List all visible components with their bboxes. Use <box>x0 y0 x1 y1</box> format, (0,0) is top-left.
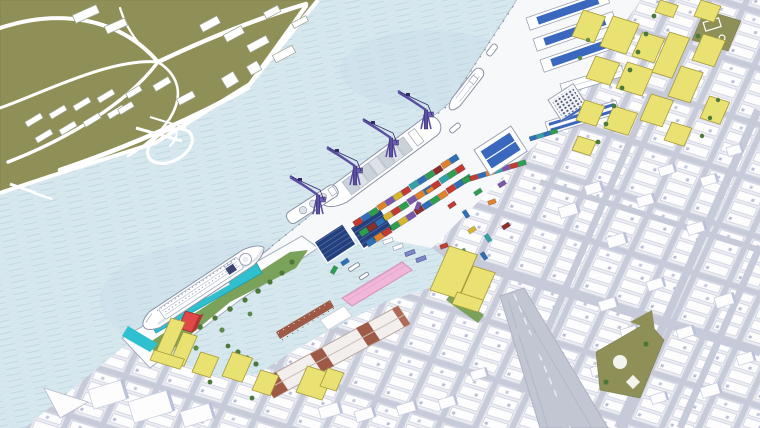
tree <box>700 134 704 138</box>
tree <box>628 68 633 73</box>
tree <box>578 56 582 60</box>
tree <box>289 259 294 264</box>
tree <box>193 345 198 350</box>
tree <box>279 270 284 275</box>
masterplan-canvas <box>0 0 760 428</box>
strip-part <box>253 361 258 366</box>
tree <box>255 288 261 294</box>
tree <box>219 327 224 332</box>
strip-part <box>226 344 231 349</box>
tree <box>248 312 253 317</box>
park-part <box>696 34 701 39</box>
tree <box>708 116 712 120</box>
tree <box>242 297 247 302</box>
tree <box>212 315 217 320</box>
tree <box>227 306 233 312</box>
park-part <box>613 355 627 369</box>
tree <box>716 98 720 102</box>
waterfront-masterplan-illustration <box>0 0 760 428</box>
tree <box>604 122 609 127</box>
tree <box>644 32 649 37</box>
strip-part <box>250 396 255 401</box>
strip-part <box>208 380 213 385</box>
tree <box>620 86 625 91</box>
tree <box>596 140 601 145</box>
park-part <box>643 341 648 346</box>
park-part <box>603 379 608 384</box>
tree <box>652 14 657 19</box>
tree <box>267 279 272 284</box>
tree <box>612 104 617 109</box>
tree <box>586 38 590 42</box>
tree <box>636 50 641 55</box>
